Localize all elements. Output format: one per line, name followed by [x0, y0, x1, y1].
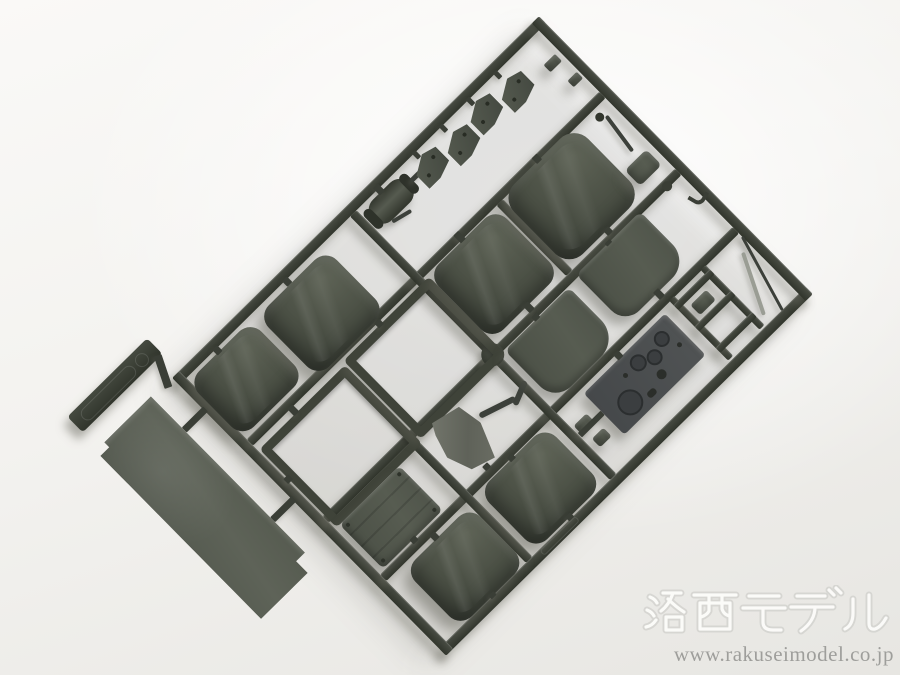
- watermark: 洛西モデル www.rakuseimodel.co.jp: [642, 585, 894, 667]
- photo-canvas: 洛西モデル www.rakuseimodel.co.jp: [0, 0, 900, 675]
- bracket-hole: [480, 119, 486, 125]
- speedometer-gauge: [612, 384, 649, 421]
- rear-view-mirror: [625, 149, 662, 186]
- molding-gate: [493, 70, 503, 80]
- molding-gate: [154, 354, 172, 389]
- panel-hole: [622, 372, 629, 379]
- small-clip-2: [592, 428, 612, 448]
- sprue-runner-frame: [172, 16, 813, 655]
- bracket-hole: [457, 150, 463, 156]
- molding-gate: [466, 96, 476, 106]
- lid-rivet: [432, 507, 438, 513]
- exhaust-segment: [478, 396, 516, 419]
- gear-lever-knob: [593, 111, 606, 124]
- bracket-hole: [430, 154, 436, 160]
- tab-part-1: [544, 54, 562, 72]
- watermark-url: www.rakuseimodel.co.jp: [642, 642, 894, 667]
- bracket-hole: [426, 173, 432, 179]
- molding-gate: [438, 123, 448, 133]
- panel-hole: [655, 367, 669, 381]
- gauge: [651, 328, 674, 351]
- panel-hole: [676, 341, 683, 348]
- bracket-hole: [462, 132, 468, 138]
- exhaust-pipe: [473, 368, 540, 434]
- panel-lever: [646, 387, 658, 399]
- exhaust-segment: [512, 380, 528, 406]
- lid-rivet: [396, 471, 402, 477]
- watermark-logo: [642, 585, 894, 637]
- lid-rivet: [345, 522, 351, 528]
- tag-embossed-circle: [132, 350, 152, 370]
- bracket-hole: [485, 101, 491, 107]
- bracket-hole: [516, 78, 522, 84]
- lid-rivet: [380, 558, 386, 564]
- molding-gate: [411, 150, 421, 160]
- tab-part-2: [567, 72, 583, 88]
- tag-embossed-oval: [78, 363, 139, 424]
- bracket-hole: [511, 97, 517, 103]
